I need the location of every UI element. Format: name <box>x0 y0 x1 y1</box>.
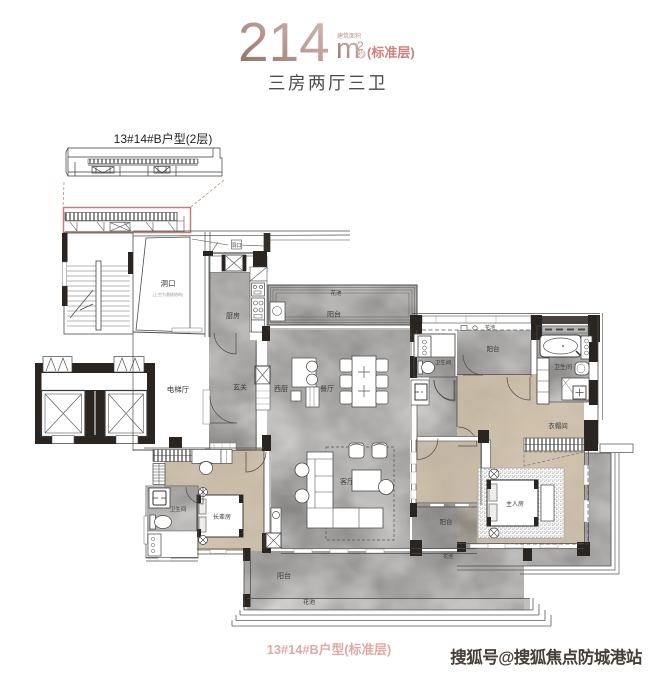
svg-text:衣帽间: 衣帽间 <box>548 421 568 430</box>
svg-text:花池: 花池 <box>485 324 495 331</box>
svg-text:西厨: 西厨 <box>274 385 288 393</box>
svg-text:餐厅: 餐厅 <box>320 384 334 393</box>
svg-text:洞口: 洞口 <box>161 279 176 288</box>
svg-text:搜狐号@搜狐焦点防城港站: 搜狐号@搜狐焦点防城港站 <box>450 647 643 667</box>
svg-text:花池: 花池 <box>443 553 453 560</box>
svg-text:卫生间: 卫生间 <box>554 363 572 371</box>
svg-text:玄关: 玄关 <box>233 383 247 392</box>
svg-text:洞口: 洞口 <box>231 242 241 249</box>
svg-text:长辈房: 长辈房 <box>213 513 231 521</box>
svg-text:花池: 花池 <box>330 289 342 297</box>
svg-text:阳台: 阳台 <box>440 517 453 526</box>
svg-text:214: 214 <box>238 11 330 73</box>
svg-text:电梯厅: 电梯厅 <box>167 384 190 394</box>
svg-text:花池: 花池 <box>303 598 315 606</box>
svg-text:13#14#B户型(2层): 13#14#B户型(2层) <box>114 131 213 146</box>
svg-text:13#14#B户型(标准层): 13#14#B户型(标准层) <box>267 642 391 657</box>
svg-text:(标准层): (标准层) <box>367 45 415 60</box>
svg-text:阳台: 阳台 <box>277 571 291 580</box>
svg-text:厨房: 厨房 <box>226 311 240 320</box>
svg-text:卫生间: 卫生间 <box>435 359 452 367</box>
svg-text:卫生间: 卫生间 <box>170 505 187 513</box>
svg-text:约: 约 <box>358 51 364 59</box>
svg-text:主人房: 主人房 <box>506 500 524 508</box>
svg-text:阳台: 阳台 <box>327 310 341 319</box>
svg-text:三房两厅三卫: 三房两厅三卫 <box>268 73 388 93</box>
svg-text:阳台: 阳台 <box>487 344 500 353</box>
svg-text:(上空为悬挑结构): (上空为悬挑结构) <box>153 291 184 297</box>
